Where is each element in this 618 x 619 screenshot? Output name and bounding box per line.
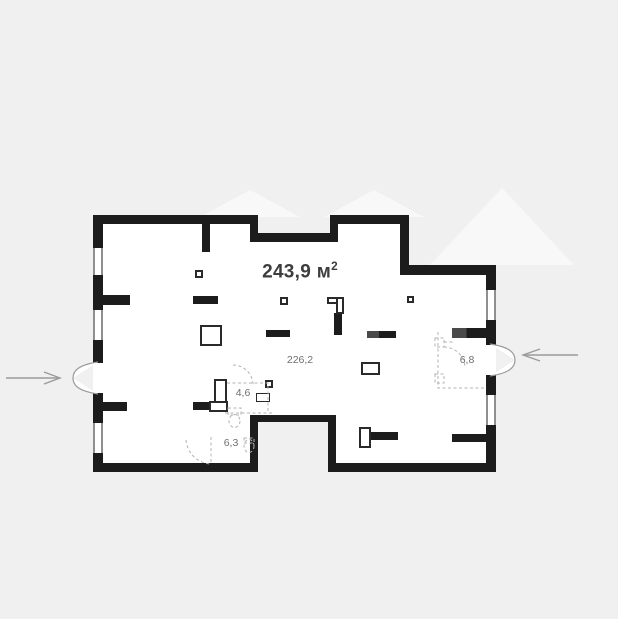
total-area-label: 243,9 м2 xyxy=(245,260,355,283)
room-label-wc: 6,3 xyxy=(206,437,256,449)
room-label-bathroom: 4,6 xyxy=(218,387,268,399)
toilet-icon xyxy=(228,408,241,415)
total-area-sup: 2 xyxy=(331,260,338,273)
toilet-icon xyxy=(229,415,240,428)
dashed-door-arc xyxy=(233,365,253,385)
entrance-door-swing-left xyxy=(62,359,104,397)
total-area-value: 243,9 xyxy=(262,261,311,282)
floor-plan-canvas: 243,9 м2 226,2 6,8 4,6 6,3 xyxy=(0,0,618,619)
entrance-arrow-right-icon xyxy=(510,347,578,363)
total-area-unit: м xyxy=(317,261,331,282)
room-label-main: 226,2 xyxy=(270,354,330,366)
room-label-vestibule: 6,8 xyxy=(442,354,492,366)
dashed-fixtures-layer xyxy=(0,0,618,619)
entrance-arrow-left-icon xyxy=(6,370,66,386)
dashed-post xyxy=(435,374,444,383)
dashed-post xyxy=(435,338,444,347)
